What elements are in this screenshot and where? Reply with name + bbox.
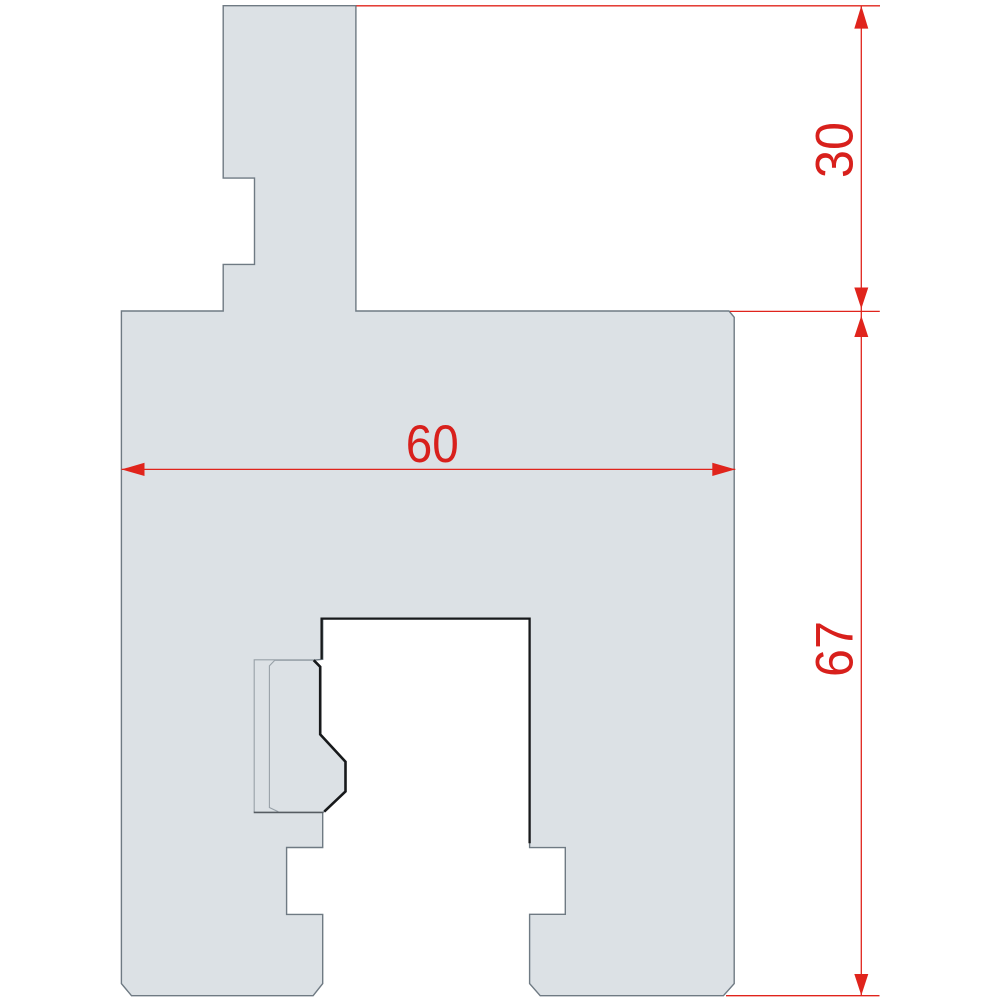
svg-text:67: 67 [804, 621, 863, 677]
svg-text:30: 30 [804, 122, 863, 178]
svg-text:60: 60 [406, 413, 459, 473]
